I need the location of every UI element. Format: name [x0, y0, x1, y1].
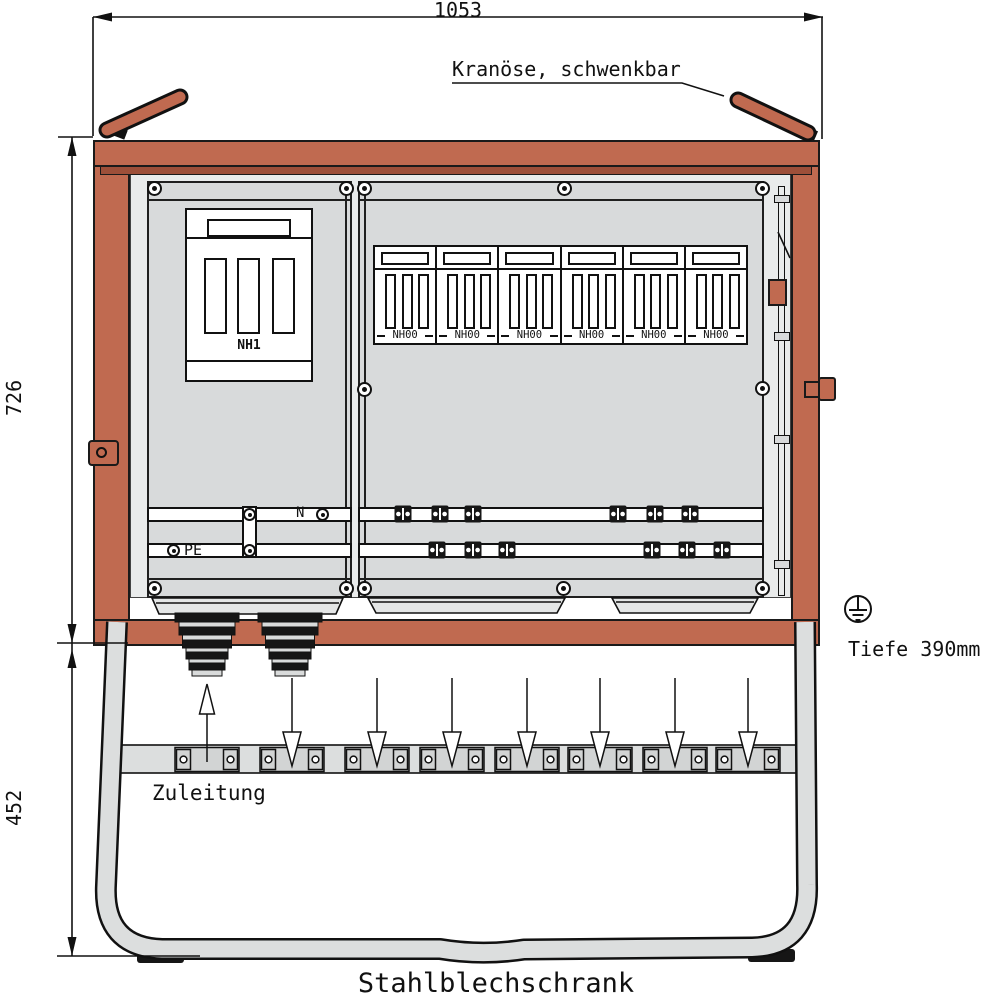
drawing-title: Stahlblechschrank — [0, 968, 992, 999]
supply-note-label: Zuleitung — [152, 781, 266, 805]
earth-busbar-clamps — [429, 542, 731, 559]
bottom-flanges — [152, 598, 758, 614]
drawing-overlay — [0, 0, 992, 1000]
dim-height-lower-label: 452 — [2, 776, 26, 840]
busbar-clamp — [714, 542, 731, 559]
busbar-clamp — [429, 542, 446, 559]
earth-symbol-icon — [845, 596, 871, 622]
busbar-clamp — [465, 542, 482, 559]
busbar-clamp — [499, 542, 516, 559]
technical-drawing-cabinet: NH1 NH00 NH00 NH00 — [0, 0, 992, 1000]
busbar-clamp — [682, 506, 699, 523]
busbar-clamp — [644, 542, 661, 559]
busbar-clamp — [395, 506, 412, 523]
busbar-clamp — [647, 506, 664, 523]
cable-gland-inlet — [175, 613, 239, 676]
crane-eye-left — [105, 97, 180, 135]
busbar-clamp — [465, 506, 482, 523]
crane-note-label: Kranöse, schwenkbar — [452, 57, 681, 81]
terminal-rail — [108, 745, 808, 773]
busbar-clamp — [610, 506, 627, 523]
crane-leader-line — [452, 83, 724, 96]
busbar-clamp — [679, 542, 696, 559]
dimension-arrowheads — [68, 13, 824, 957]
dim-height-upper-label: 726 — [2, 366, 26, 430]
neutral-busbar-clamps — [395, 506, 699, 523]
cable-gland-outlet — [258, 613, 322, 676]
dimension-lines — [57, 17, 823, 956]
busbar-clamp — [432, 506, 449, 523]
door-latch-diagonal — [778, 232, 790, 258]
crane-eye-right — [738, 100, 816, 136]
depth-note-label: Tiefe 390mm — [848, 637, 980, 661]
dim-width-label: 1053 — [388, 0, 528, 22]
